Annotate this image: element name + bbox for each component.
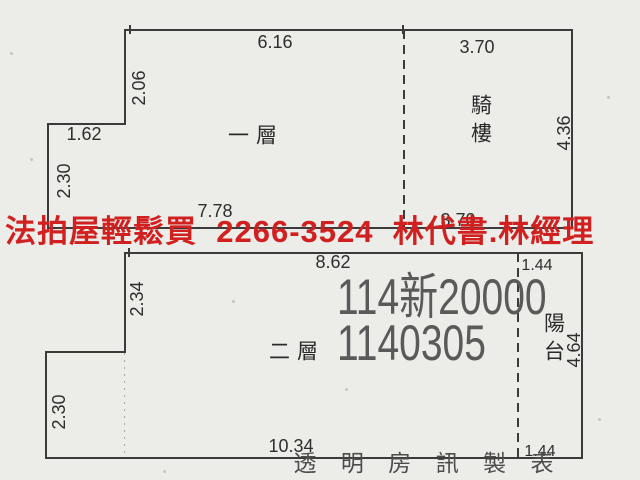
scan-noise-dot: [10, 52, 13, 55]
agent-watermark-text: 法拍屋輕鬆買 2266-3524 林代書.林經理: [5, 215, 594, 249]
scan-noise-dot: [232, 300, 235, 303]
f1-dim-tick: [129, 25, 131, 34]
f2-dim-right-height: 4.64: [565, 332, 583, 367]
date-code-stamp: 1140305: [337, 318, 486, 368]
publisher-credit: 透 明 房 訊 製 表: [294, 444, 563, 478]
scan-noise-dot: [345, 388, 348, 391]
scan-noise-dot: [598, 418, 601, 421]
f1-dim-tick: [402, 25, 404, 34]
f2-dim-tick: [128, 248, 130, 257]
f2-room-label: 二層: [269, 342, 325, 363]
f1-dim-right-height: 4.36: [555, 115, 573, 150]
f2-left-lower-wall: [45, 351, 47, 459]
f1-dim-annex-top-width: 3.70: [459, 38, 494, 56]
f1-dim-top-width: 6.16: [257, 33, 292, 51]
f1-dim-upper-left-height: 2.06: [130, 70, 148, 105]
f1-annex-label: 騎樓: [470, 94, 491, 150]
f2-step-wall: [45, 351, 126, 353]
f2-top-wall: [125, 252, 583, 254]
f1-dim-lower-left-height: 2.30: [55, 163, 73, 198]
f1-arcade-divider-dashed-line: [403, 30, 405, 227]
f1-top-wall: [125, 29, 573, 31]
f2-dim-lower-left-height: 2.30: [50, 394, 68, 429]
f1-dim-step-width: 1.62: [66, 125, 101, 143]
f2-left-upper-wall: [124, 252, 126, 353]
f1-room-label: 一層: [228, 126, 284, 147]
scan-noise-dot: [163, 470, 166, 473]
floorplan-scan: 6.16 3.70 2.06 1.62 2.30 4.36 7.78 3.70 …: [0, 0, 640, 480]
f2-step-projection-dotted-line: [124, 353, 125, 457]
f2-dim-upper-left-height: 2.34: [128, 281, 146, 316]
f1-left-upper-wall: [124, 29, 126, 125]
scan-noise-dot: [30, 158, 33, 161]
scan-noise-dot: [607, 96, 610, 99]
